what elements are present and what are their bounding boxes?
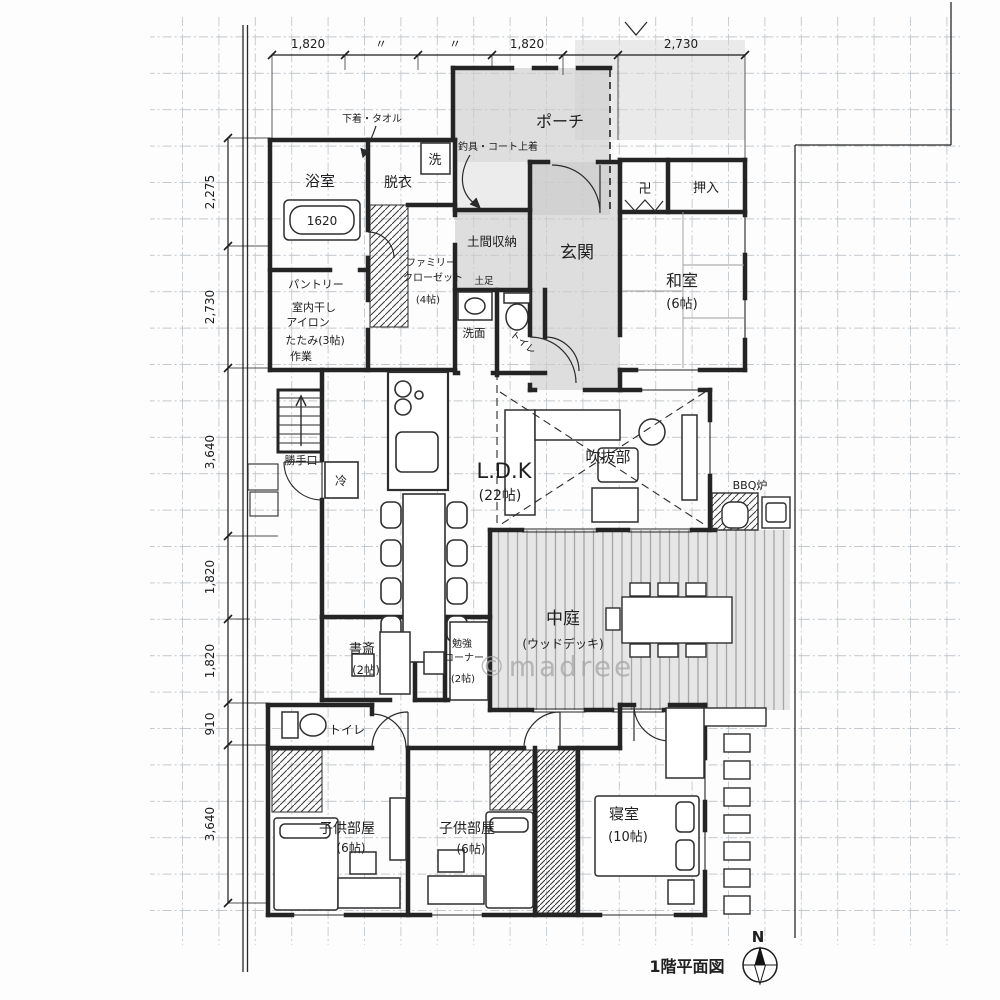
label-entrance: 玄関 xyxy=(560,243,594,263)
dim-top-5: 2,730 xyxy=(664,37,698,51)
dim-left-1: 2,275 xyxy=(203,175,217,209)
kids1-closet xyxy=(272,750,322,812)
label-study-corner-1: 勉強 xyxy=(452,637,472,650)
walk-in-closet xyxy=(537,750,576,913)
label-doma-sub: 土足 xyxy=(474,275,494,287)
dining-chair xyxy=(447,540,467,566)
label-fishing-coat: 釣具・コート上着 xyxy=(458,140,538,153)
dining-chair xyxy=(381,578,401,604)
label-ldk-size: (22帖) xyxy=(479,488,522,504)
outdoor-chair xyxy=(630,583,650,596)
stepping-stone xyxy=(724,842,750,860)
label-kids1: 子供部屋 xyxy=(319,821,375,837)
dim-top-1: 1,820 xyxy=(291,37,325,51)
label-doma-storage: 土間収納 xyxy=(467,234,517,249)
label-bedroom: 寝室 xyxy=(609,805,639,823)
label-study-corner-3: (2帖) xyxy=(451,672,475,685)
main-pillow xyxy=(676,802,694,832)
dim-top-3: 〃 xyxy=(449,37,461,51)
dining-chair xyxy=(381,540,401,566)
label-kids2-size: (6帖) xyxy=(457,841,486,856)
label-bbq: BBQ炉 xyxy=(733,479,768,492)
tv-board xyxy=(682,415,697,500)
dining-chair xyxy=(447,578,467,604)
stove-burner xyxy=(415,391,423,399)
label-toilet2: トイレ xyxy=(329,723,365,737)
outdoor-chair xyxy=(606,608,620,630)
dim-top-4: 1,820 xyxy=(510,37,544,51)
kids2-closet xyxy=(490,750,533,810)
kids1-shelf xyxy=(390,798,406,860)
label-pantry-5: 作業 xyxy=(290,350,312,363)
low-table xyxy=(592,488,638,522)
label-washer: 洗 xyxy=(428,153,441,168)
outdoor-table xyxy=(622,597,732,643)
label-courtyard: 中庭 xyxy=(546,609,580,629)
outdoor-chair xyxy=(686,583,706,596)
watermark: ©madree xyxy=(478,650,635,683)
label-altar: 卍 xyxy=(638,182,651,197)
kids2-pillow xyxy=(490,818,528,832)
kids2-desk xyxy=(428,876,484,904)
stepping-stone xyxy=(724,815,750,833)
dining-chair xyxy=(381,502,401,528)
outdoor-chair xyxy=(658,583,678,596)
label-void: 吹抜部 xyxy=(585,448,630,466)
toilet2-tank xyxy=(282,712,298,738)
dim-left-7: 3,640 xyxy=(203,807,217,841)
label-study-size: (2帖) xyxy=(352,663,380,677)
floor-plan-page: 1,820 〃 〃 1,820 2,730 2,275 2,730 3,640 … xyxy=(0,0,1000,1000)
stove-burner xyxy=(395,381,411,397)
outdoor-chair xyxy=(658,644,678,657)
label-pantry-4: たたみ(3帖) xyxy=(285,334,345,347)
washbasin-bowl xyxy=(465,298,485,314)
label-washroom: 洗面 xyxy=(463,326,486,340)
toilet2-bowl xyxy=(300,714,326,736)
label-study: 書斎 xyxy=(349,641,375,657)
stove-burner xyxy=(395,399,411,415)
garden-step xyxy=(700,708,766,726)
label-fridge: 冷 xyxy=(335,474,347,488)
stepping-stone xyxy=(724,788,750,806)
main-pillow xyxy=(676,840,694,870)
bbq-hearth-pit xyxy=(722,502,748,528)
label-dressing: 脱衣 xyxy=(384,175,412,191)
label-bedroom-size: (10帖) xyxy=(608,830,648,845)
dim-top-2: 〃 xyxy=(375,37,387,51)
dim-left-3: 3,640 xyxy=(203,435,217,469)
label-underwear-towel: 下着・タオル xyxy=(342,112,402,125)
compass-north-label: N xyxy=(752,928,765,946)
dim-left-5: 1,820 xyxy=(203,644,217,678)
study-desk xyxy=(380,632,410,694)
side-table xyxy=(639,419,665,445)
sofa xyxy=(535,410,620,440)
nightstand xyxy=(668,880,694,904)
stepping-stone xyxy=(724,896,750,914)
label-pantry-3: アイロン xyxy=(286,316,329,329)
label-tub-size: 1620 xyxy=(307,214,338,228)
stepping-stone xyxy=(724,761,750,779)
dining-chair xyxy=(447,502,467,528)
label-bath: 浴室 xyxy=(305,172,335,190)
kids1-chair xyxy=(350,852,376,874)
label-family-closet-2: クローゼット xyxy=(403,272,463,284)
dim-left-6: 910 xyxy=(203,713,217,736)
dim-left-4: 1,820 xyxy=(203,560,217,594)
bbq-counter-top xyxy=(766,503,786,522)
label-porch: ポーチ xyxy=(536,112,584,131)
coat-closet-floor xyxy=(457,162,528,208)
dim-left-2: 2,730 xyxy=(203,290,217,324)
plan-title: 1階平面図 xyxy=(649,957,724,976)
toilet1-bowl xyxy=(506,304,528,330)
toilet1-tank xyxy=(504,293,530,303)
label-courtyard-sub: (ウッドデッキ) xyxy=(522,636,603,651)
label-japanese-room-size: (6帖) xyxy=(666,297,697,312)
label-back-door: 勝手口 xyxy=(285,453,318,467)
floor-plan-canvas: 1,820 〃 〃 1,820 2,730 2,275 2,730 3,640 … xyxy=(0,0,1000,1000)
kids1-desk xyxy=(338,878,400,908)
kitchen-sink xyxy=(396,432,438,472)
bedroom-cabinet xyxy=(666,708,704,778)
family-closet-hanger xyxy=(370,205,408,327)
label-kids1-size: (6帖) xyxy=(337,840,366,855)
study-corner-chair xyxy=(424,652,444,674)
stepping-stone xyxy=(724,869,750,887)
outdoor-chair xyxy=(686,644,706,657)
label-ldk: L.D.K xyxy=(477,459,533,483)
label-oshiire: 押入 xyxy=(693,181,719,196)
label-family-closet-3: (4帖) xyxy=(416,293,440,306)
stepping-stone xyxy=(724,734,750,752)
label-family-closet-1: ファミリー xyxy=(406,258,456,269)
label-kids2: 子供部屋 xyxy=(439,821,495,837)
label-pantry-1: パントリー xyxy=(288,278,344,291)
label-japanese-room: 和室 xyxy=(666,271,698,290)
label-pantry-2: 室内干し xyxy=(292,300,336,314)
